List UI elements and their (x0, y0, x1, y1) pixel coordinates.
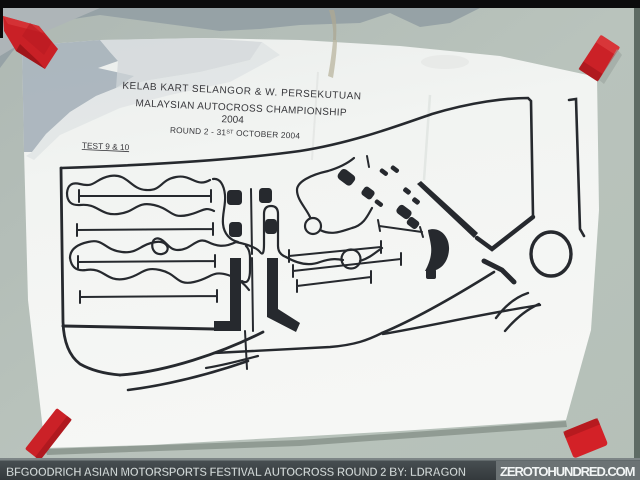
svg-text:ZEROTOHUNDRED.COM: ZEROTOHUNDRED.COM (500, 464, 636, 479)
svg-text:BFGOODRICH ASIAN MOTORSPORTS F: BFGOODRICH ASIAN MOTORSPORTS FESTIVAL AU… (6, 467, 466, 479)
svg-text:2004: 2004 (221, 114, 244, 126)
